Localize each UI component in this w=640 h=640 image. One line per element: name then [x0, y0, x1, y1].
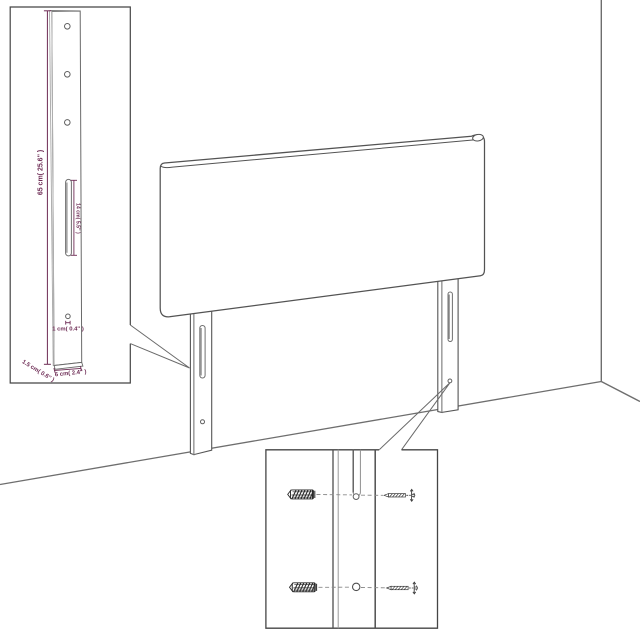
- svg-text:1 cm( 0.4'' ): 1 cm( 0.4'' ): [52, 327, 84, 333]
- svg-text:14 cm( 5.5'' ): 14 cm( 5.5'' ): [74, 203, 80, 234]
- svg-text:65 cm( 25.6'' ): 65 cm( 25.6'' ): [38, 150, 45, 195]
